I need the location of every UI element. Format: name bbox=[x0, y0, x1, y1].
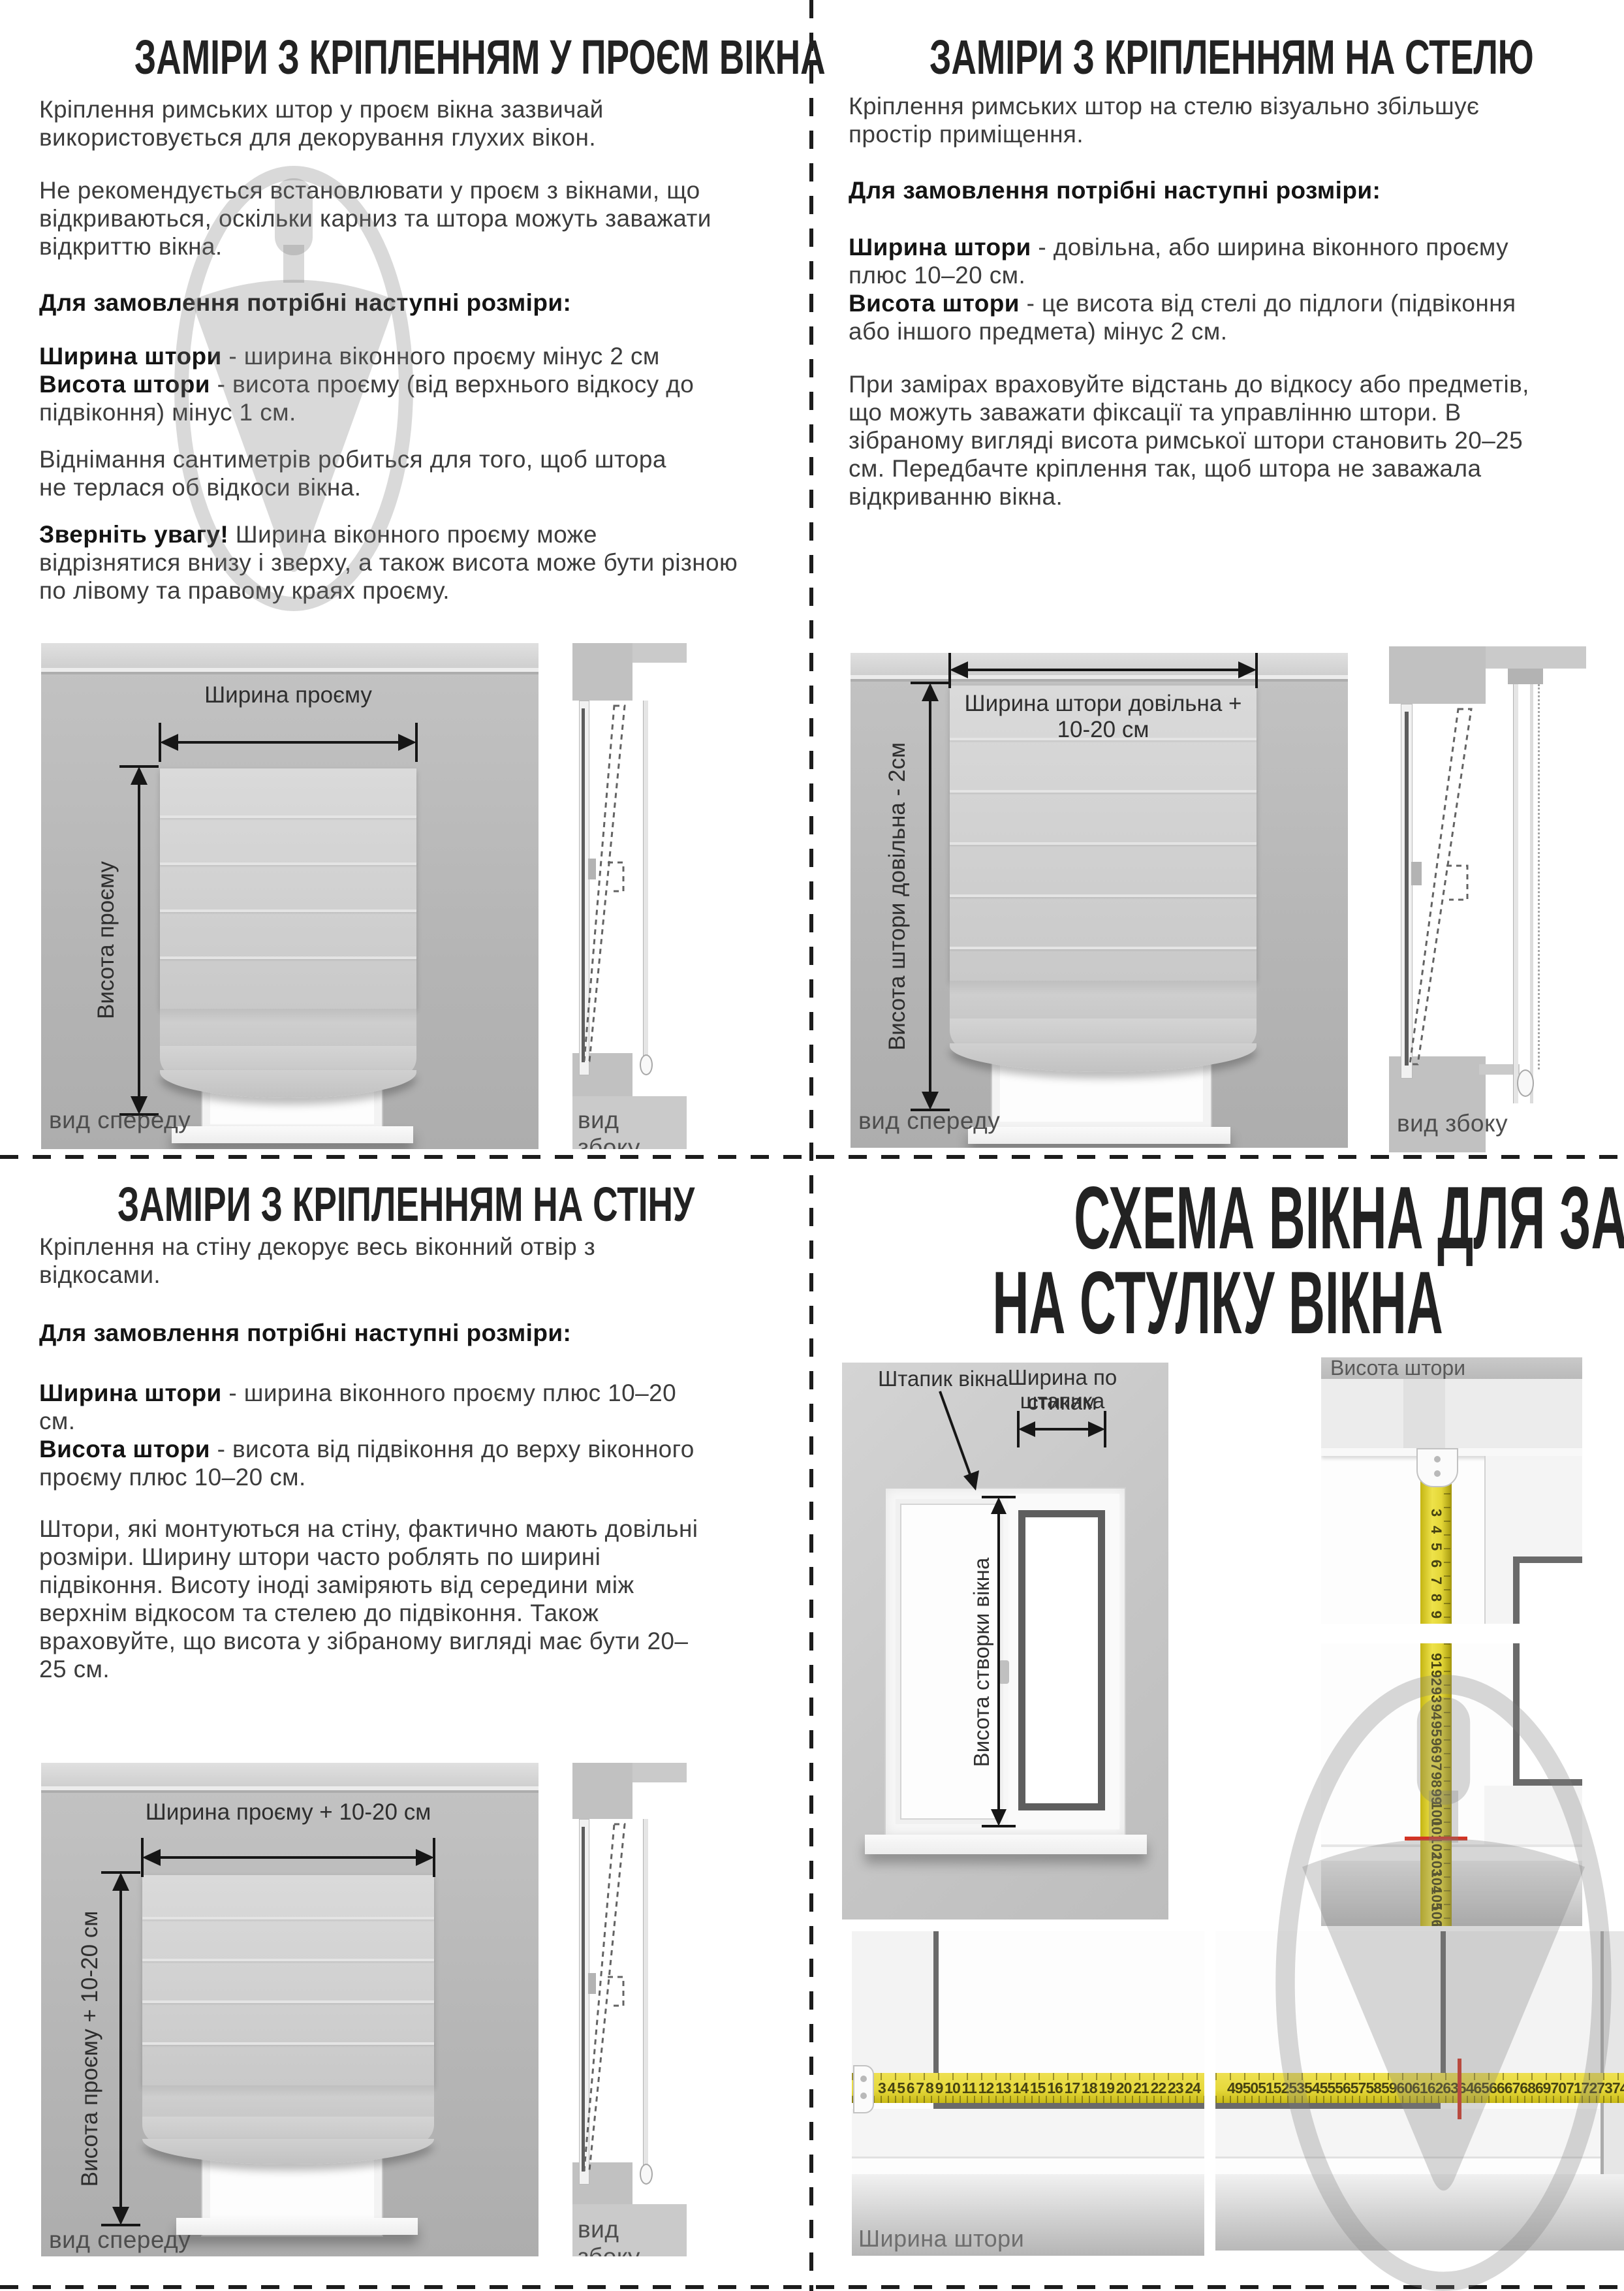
vertical-dashed-divider bbox=[809, 0, 813, 2291]
sill-front bbox=[1215, 2174, 1624, 2251]
wall bbox=[1604, 1931, 1624, 2179]
side-view-caption: вид збоку bbox=[1397, 1110, 1508, 1137]
measuring-tape-horizontal: 3456789101112131415161718192021222324 bbox=[852, 2073, 1204, 2103]
sill-line bbox=[1321, 1844, 1582, 1847]
section-title: ЗАМІРИ З КРІПЛЕННЯМ НА СТЕЛЮ bbox=[812, 31, 1624, 84]
width-photo-label: Ширина штори bbox=[858, 2225, 1024, 2252]
width-photo-right: 4950515253545556575859606162636465666768… bbox=[1215, 1931, 1624, 2251]
glass-edge bbox=[1513, 1643, 1582, 1779]
window-frame bbox=[1484, 1786, 1582, 1844]
shade-profile bbox=[643, 701, 648, 1069]
tape-number: 52 bbox=[1273, 2079, 1289, 2097]
side-view-illustration: вид збоку bbox=[572, 643, 687, 1149]
tape-numbers: 9192939495969798991001011021031041051061… bbox=[1420, 1652, 1452, 1908]
tape-number: 67 bbox=[1505, 2079, 1520, 2097]
ceiling-mount-bracket bbox=[1508, 669, 1543, 684]
height-term: Висота штори bbox=[849, 290, 1020, 317]
shade-width-label: Ширина штори довільна + 10-20 см bbox=[950, 691, 1257, 743]
tape-number: 70 bbox=[1550, 2079, 1566, 2097]
shade-profile bbox=[643, 1819, 648, 2178]
tape-number: 20 bbox=[1116, 2079, 1132, 2097]
measuring-tape-vertical: 9192939495969798991001011021031041051061… bbox=[1420, 1643, 1452, 1926]
tape-number: 60 bbox=[1397, 2079, 1413, 2097]
tape-number: 55 bbox=[1320, 2079, 1335, 2097]
glass-bottom-edge bbox=[933, 2103, 1204, 2109]
hook-rivet bbox=[860, 2076, 867, 2082]
tape-number: 12 bbox=[978, 2079, 994, 2097]
tape-number: 93 bbox=[1428, 1687, 1444, 1703]
opening-height-label: Висота проєму bbox=[93, 803, 119, 1077]
paragraph: Штори, які монтуються на стіну, фактично… bbox=[39, 1515, 711, 1683]
tape-number: 65 bbox=[1474, 2079, 1490, 2097]
window-frame bbox=[1215, 2109, 1601, 2157]
sizes-block: Ширина штори - ширина віконного проєму м… bbox=[39, 342, 698, 426]
tape-number: 19 bbox=[1099, 2079, 1114, 2097]
tape-number: 18 bbox=[1082, 2079, 1097, 2097]
bottom-dashed-divider bbox=[0, 2285, 1624, 2289]
tape-number: 22 bbox=[1151, 2079, 1166, 2097]
tape-number: 51 bbox=[1258, 2079, 1273, 2097]
tape-number: 63 bbox=[1443, 2079, 1458, 2097]
instruction-sheet: ЗАМІРИ З КРІПЛЕННЯМ У ПРОЄМ ВІКНА Кріпле… bbox=[0, 0, 1624, 2291]
hook-rivet bbox=[860, 2093, 867, 2099]
order-heading: Для замовлення потрібні наступні розміри… bbox=[39, 1319, 571, 1346]
section-title: ЗАМІРИ З КРІПЛЕННЯМ НА СТІНУ bbox=[0, 1178, 812, 1231]
paragraph: При замірах враховуйте відстань до відко… bbox=[849, 370, 1540, 511]
height-photo-bottom: 9192939495969798991001011021031041051061… bbox=[1321, 1643, 1582, 1926]
tape-number: 8 bbox=[926, 2079, 933, 2097]
frame-line bbox=[1215, 2157, 1601, 2158]
tape-number: 6 bbox=[1428, 1560, 1444, 1568]
tape-number: 58 bbox=[1366, 2079, 1381, 2097]
hook-rivet bbox=[1434, 1456, 1441, 1462]
frame-line bbox=[852, 2157, 1204, 2158]
side-view-illustration: вид збоку bbox=[572, 1763, 687, 2256]
tape-number: 9 bbox=[1428, 1611, 1444, 1619]
glass-bottom-edge bbox=[1513, 1779, 1582, 1786]
height-photo-bar: Висота штори bbox=[1321, 1357, 1582, 1379]
tape-number: 17 bbox=[1065, 2079, 1080, 2097]
window-frame bbox=[852, 1931, 933, 2073]
note-term: Зверніть увагу! bbox=[39, 521, 228, 548]
tilted-sash-outline bbox=[572, 1763, 687, 2256]
diagram-arrows bbox=[842, 1363, 1168, 1920]
order-heading: Для замовлення потрібні наступні розміри… bbox=[39, 289, 571, 316]
tape-number: 72 bbox=[1582, 2079, 1597, 2097]
order-heading: Для замовлення потрібні наступні розміри… bbox=[849, 177, 1381, 204]
tape-number: 94 bbox=[1428, 1704, 1444, 1720]
tape-number: 23 bbox=[1168, 2079, 1183, 2097]
tape-number: 95 bbox=[1428, 1721, 1444, 1737]
window-diagram: Штапик вікна Ширина по стикам штапика Ви… bbox=[842, 1363, 1168, 1920]
ceiling bbox=[1321, 1379, 1582, 1448]
tape-number: 62 bbox=[1428, 2079, 1443, 2097]
scheme-title-line2: НА СТУЛКУ ВІКНА bbox=[812, 1260, 1624, 1345]
tape-numbers: 4950515253545556575859606162636465666768… bbox=[1227, 2073, 1522, 2103]
shade-profile-back bbox=[1530, 684, 1533, 1103]
tilted-sash-outline bbox=[572, 643, 687, 1149]
tape-number: 92 bbox=[1428, 1670, 1444, 1686]
tape-number: 14 bbox=[1012, 2079, 1028, 2097]
tape-number: 16 bbox=[1047, 2079, 1063, 2097]
tape-number: 21 bbox=[1133, 2079, 1149, 2097]
ceiling-shadow-band bbox=[1403, 1379, 1445, 1448]
tape-numbers: 34567891011 bbox=[1420, 1504, 1452, 1620]
chain-pull bbox=[640, 1054, 653, 1075]
chain-profile bbox=[1538, 684, 1540, 1069]
chain-pull bbox=[1517, 1069, 1534, 1097]
sill-front bbox=[1321, 1861, 1582, 1926]
tape-number: 107 bbox=[1428, 1921, 1444, 1926]
paragraph: Не рекомендується встановлювати у проєм … bbox=[39, 176, 731, 261]
tape-number: 49 bbox=[1227, 2079, 1243, 2097]
bead-width-label-line2: штапика bbox=[982, 1389, 1142, 1414]
tape-number: 6 bbox=[907, 2079, 914, 2097]
window-frame bbox=[852, 2109, 1204, 2157]
width-term: Ширина штори bbox=[39, 343, 222, 370]
paragraph: Кріплення римських штор на стелю візуаль… bbox=[849, 92, 1554, 148]
glass-corner bbox=[1513, 1556, 1582, 1624]
tape-number: 54 bbox=[1304, 2079, 1320, 2097]
glass-right-edge bbox=[1441, 1931, 1446, 2073]
tape-number: 5 bbox=[897, 2079, 905, 2097]
tape-number: 7 bbox=[916, 2079, 924, 2097]
tape-number: 3 bbox=[1428, 1509, 1444, 1517]
tape-number: 74 bbox=[1612, 2079, 1624, 2097]
tape-number: 5 bbox=[1428, 1543, 1444, 1551]
width-term: Ширина штори bbox=[849, 234, 1031, 261]
tape-number: 59 bbox=[1381, 2079, 1397, 2097]
tape-number: 97 bbox=[1428, 1755, 1444, 1771]
dimension-arrows bbox=[41, 1763, 539, 2256]
window-frame bbox=[1446, 1931, 1601, 2073]
sizes-block: Ширина штори - довільна, або ширина віко… bbox=[849, 233, 1527, 345]
height-photo-top: 34567891011 bbox=[1321, 1379, 1582, 1624]
width-photo-left: 3456789101112131415161718192021222324 Ши… bbox=[852, 1931, 1204, 2256]
hook-rivet bbox=[1434, 1470, 1441, 1477]
tape-hook bbox=[853, 2065, 874, 2113]
height-term: Висота штори bbox=[39, 371, 210, 398]
sizes-block: Ширина штори - ширина віконного проєму п… bbox=[39, 1379, 698, 1491]
opening-width-label: Ширина проєму + 10-20 см bbox=[142, 1799, 434, 1825]
front-view-caption: вид спереду bbox=[858, 1107, 1000, 1135]
side-view-caption: вид збоку bbox=[578, 1107, 687, 1149]
tape-number: 73 bbox=[1597, 2079, 1612, 2097]
tilted-sash-outline bbox=[1389, 646, 1586, 1152]
shade-profile bbox=[1513, 684, 1518, 1103]
width-term: Ширина штори bbox=[39, 1380, 222, 1406]
tape-number: 8 bbox=[1428, 1594, 1444, 1602]
tape-number: 56 bbox=[1335, 2079, 1351, 2097]
tape-number: 96 bbox=[1428, 1738, 1444, 1754]
front-view-caption: вид спереду bbox=[49, 2226, 191, 2254]
glass-left-edge bbox=[933, 1931, 939, 2073]
side-view-illustration: вид збоку bbox=[1389, 646, 1586, 1152]
front-view-illustration: Ширина проєму Висота проєму вид спереду bbox=[41, 643, 539, 1149]
note-paragraph: Зверніть увагу! Ширина віконного проєму … bbox=[39, 520, 744, 605]
tape-number: 71 bbox=[1566, 2079, 1582, 2097]
tape-number: 24 bbox=[1185, 2079, 1200, 2097]
height-term: Висота штори bbox=[39, 1436, 210, 1462]
tape-hook bbox=[1416, 1448, 1458, 1487]
chain-pull bbox=[640, 2164, 653, 2185]
front-view-illustration: Ширина штори довільна + 10-20 см Висота … bbox=[851, 653, 1348, 1148]
side-view-caption: вид збоку bbox=[578, 2216, 687, 2256]
red-measure-mark bbox=[1405, 1837, 1467, 1841]
front-view-caption: вид спереду bbox=[49, 1107, 191, 1134]
sash-height-label: Висота створки вікна bbox=[969, 1509, 994, 1816]
shade-height-label: Висота штори довільна - 2см bbox=[884, 714, 911, 1079]
tape-number: 53 bbox=[1288, 2079, 1304, 2097]
tape-number: 3 bbox=[878, 2079, 886, 2097]
tape-number: 50 bbox=[1243, 2079, 1258, 2097]
tape-number: 15 bbox=[1030, 2079, 1046, 2097]
paragraph: Віднімання сантиметрів робиться для того… bbox=[39, 445, 698, 501]
tape-number: 13 bbox=[995, 2079, 1011, 2097]
paragraph: Кріплення на стіну декорує весь віконний… bbox=[39, 1233, 718, 1289]
tape-number: 57 bbox=[1351, 2079, 1366, 2097]
height-photo-label: Висота штори bbox=[1330, 1356, 1465, 1380]
tape-number: 66 bbox=[1489, 2079, 1505, 2097]
opening-height-label: Висота проєму + 10-20 см bbox=[77, 1879, 103, 2219]
glass-bottom-edge bbox=[1215, 2103, 1441, 2109]
section-title: ЗАМІРИ З КРІПЛЕННЯМ У ПРОЄМ ВІКНА bbox=[0, 31, 812, 84]
width-rest: - ширина віконного проєму мінус 2 см bbox=[222, 343, 660, 370]
tape-number: 11 bbox=[962, 2079, 976, 2097]
tape-number: 69 bbox=[1535, 2079, 1551, 2097]
tape-numbers: 3456789101112131415161718192021222324 bbox=[878, 2073, 1200, 2103]
front-view-illustration: Ширина проєму + 10-20 см Висота проєму +… bbox=[41, 1763, 539, 2256]
tape-number: 91 bbox=[1428, 1653, 1444, 1669]
measuring-tape-horizontal: 4950515253545556575859606162636465666768… bbox=[1215, 2073, 1624, 2103]
tape-number: 9 bbox=[935, 2079, 943, 2097]
tape-number: 4 bbox=[888, 2079, 896, 2097]
tape-number: 7 bbox=[1428, 1577, 1444, 1585]
red-measure-mark bbox=[1458, 2059, 1461, 2119]
tape-number: 68 bbox=[1520, 2079, 1535, 2097]
tape-number: 10 bbox=[945, 2079, 960, 2097]
tape-number: 61 bbox=[1412, 2079, 1428, 2097]
tape-number: 98 bbox=[1428, 1772, 1444, 1788]
tape-number: 4 bbox=[1428, 1526, 1444, 1534]
horizontal-dashed-divider bbox=[0, 1155, 1624, 1159]
paragraph: Кріплення римських штор у проєм вікна за… bbox=[39, 95, 744, 151]
opening-width-label: Ширина проєму bbox=[160, 682, 416, 708]
scheme-title-line1: СХЕМА ВІКНА ДЛЯ ЗАМІРІВ bbox=[812, 1175, 1624, 1260]
